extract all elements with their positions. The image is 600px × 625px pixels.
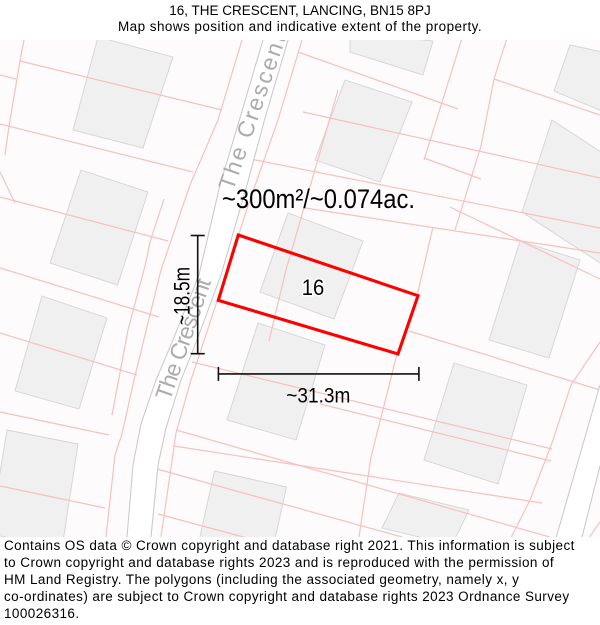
svg-text:~18.5m: ~18.5m — [170, 267, 195, 325]
svg-text:~300m²/~0.074ac.: ~300m²/~0.074ac. — [222, 184, 415, 214]
svg-text:16: 16 — [302, 275, 325, 300]
svg-text:~31.3m: ~31.3m — [286, 385, 350, 408]
